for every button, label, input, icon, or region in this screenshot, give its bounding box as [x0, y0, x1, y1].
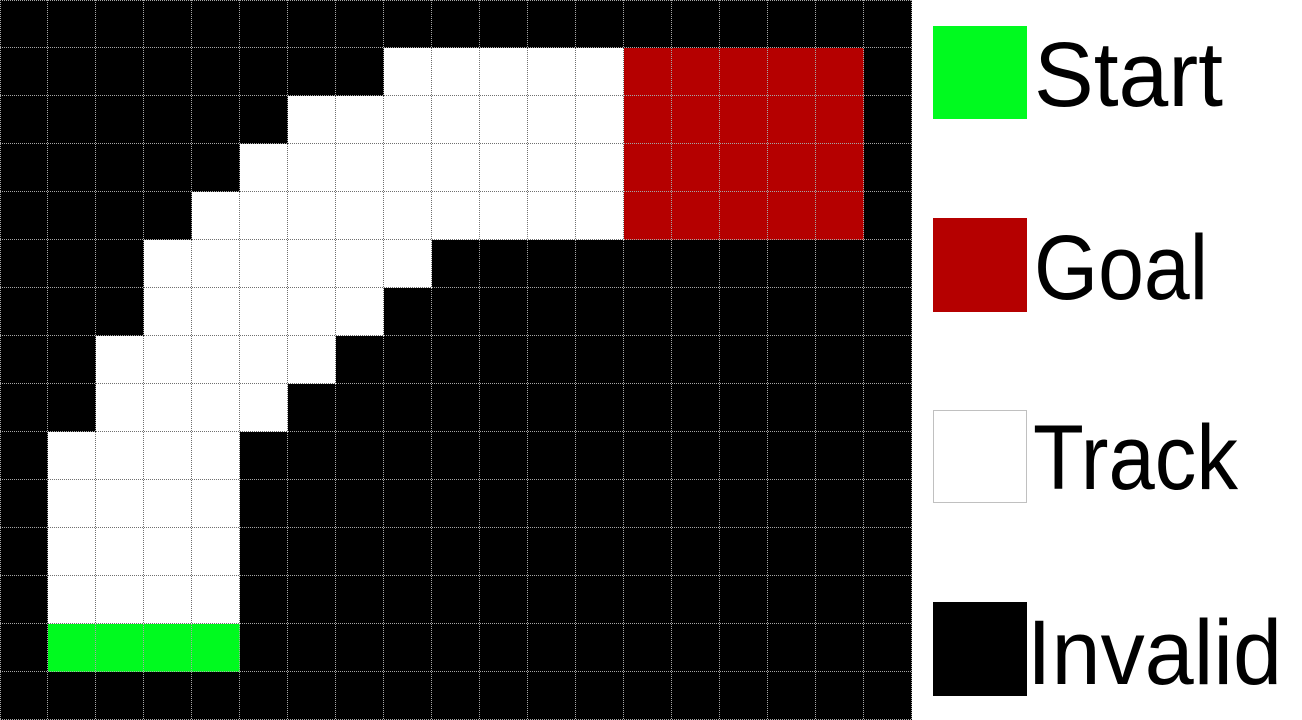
svg-text:Start: Start	[1034, 24, 1223, 126]
svg-text:Invalid: Invalid	[1027, 602, 1282, 704]
svg-text:Track: Track	[1033, 407, 1239, 509]
svg-text:Goal: Goal	[1034, 217, 1208, 319]
